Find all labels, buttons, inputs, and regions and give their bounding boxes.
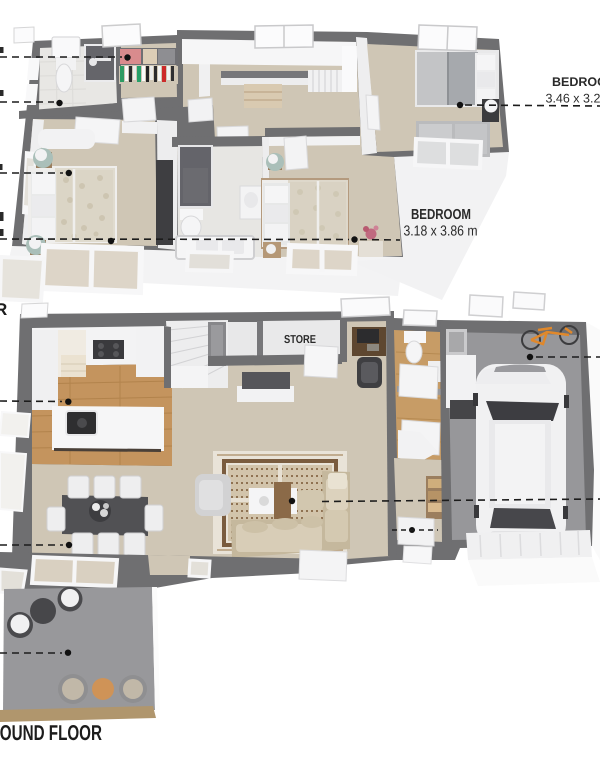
svg-text:3.18 x 3.86 m: 3.18 x 3.86 m (404, 224, 478, 240)
svg-text:STORE: STORE (284, 334, 316, 346)
svg-text:BEDROOM: BEDROOM (411, 207, 471, 223)
svg-text:GROUND FLOOR: GROUND FLOOR (0, 721, 102, 745)
svg-text:3.46 x 3.24 m: 3.46 x 3.24 m (546, 92, 600, 106)
svg-text:BEDROOM: BEDROOM (552, 75, 600, 89)
svg-text:R: R (0, 300, 7, 319)
